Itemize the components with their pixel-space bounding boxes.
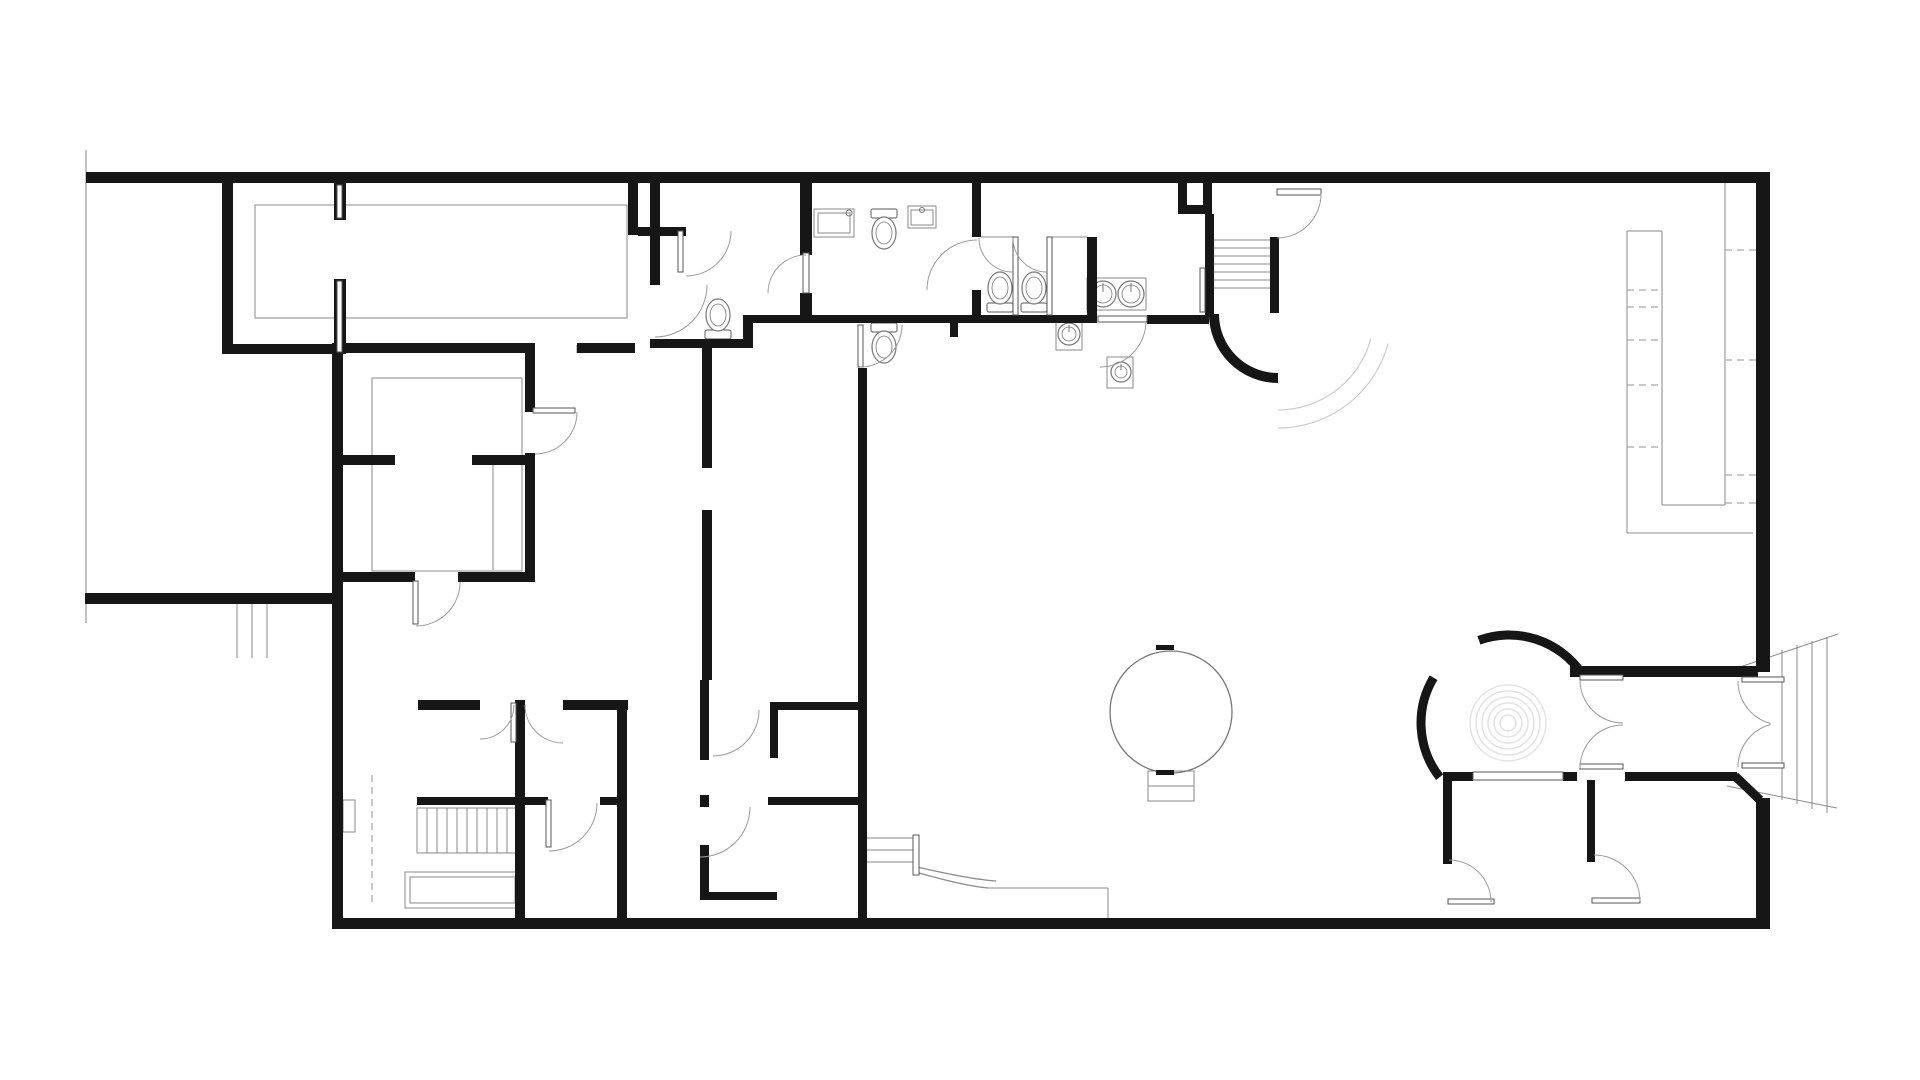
door-leaf [678,231,683,272]
wall-segment [335,918,1770,929]
wall-segment [1563,772,1577,781]
door-leaf [803,253,809,293]
wall-segment [702,348,712,468]
wall-segment [950,323,958,337]
wall-segment [418,700,480,710]
wall-segment [770,702,778,758]
wall-segment [342,572,415,582]
wall-segment [628,183,638,235]
wall-segment [472,455,525,465]
wall-segment [770,702,863,710]
wall-segment [525,343,535,412]
wall-segment [972,183,981,237]
door-leaf [1277,189,1321,195]
door-leaf [533,408,575,413]
wall-segment [222,344,335,354]
wall-segment [86,172,1770,183]
wall-segment [1756,172,1770,672]
wall-segment [743,315,753,348]
wall-segment [332,343,343,929]
wall-segment [700,845,709,900]
wall-segment [222,183,233,350]
wall-segment [1443,780,1452,864]
wall-segment [1625,772,1737,781]
wall-segment [1756,798,1770,929]
door-leaf [1742,763,1784,768]
wall-segment [1205,214,1214,317]
wall-segment [617,700,627,918]
door-leaf [337,185,342,218]
wall-segment [700,892,777,900]
door-leaf [1580,675,1623,680]
wall-segment [700,795,709,807]
wall-segment [702,510,712,680]
wall-segment [417,797,548,805]
wall-segment [342,343,533,353]
door-leaf [1742,677,1784,682]
wall-segment [85,593,335,604]
wall-segment [650,339,750,348]
door-leaf [1200,268,1205,312]
wall-segment [1147,315,1209,324]
wall-segment [1087,237,1097,317]
wall-segment [700,680,709,760]
door-leaf [1098,316,1147,322]
wall-segment [1203,183,1212,214]
door-leaf [1580,764,1623,769]
wall-segment [577,343,635,353]
feature-tick [1156,645,1174,650]
door-leaf [913,835,919,875]
feature-tick [1156,770,1174,775]
wall-segment [768,797,858,805]
wall-segment [600,797,627,805]
wall-segment [1443,772,1473,781]
wall-segment [800,183,812,255]
wall-segment [650,183,660,285]
floor-plan-canvas [0,0,1920,1080]
door-leaf [1592,898,1640,903]
door-leaf [1473,772,1563,780]
door-leaf [413,581,418,624]
door-leaf [858,325,863,367]
wall-segment [972,290,981,315]
wall-segment [525,453,535,582]
wall-segment [1270,237,1279,313]
door-leaf [1013,237,1018,315]
door-leaf [337,281,342,352]
door-leaf [1448,899,1494,904]
wall-segment [1587,780,1595,862]
wall-segment [342,455,395,465]
wall-segment [458,572,533,582]
door-leaf [546,800,551,847]
wall-segment [800,293,812,323]
door-leaf [1047,237,1052,315]
floor-plan [0,0,1920,1080]
wall-segment [858,368,867,919]
